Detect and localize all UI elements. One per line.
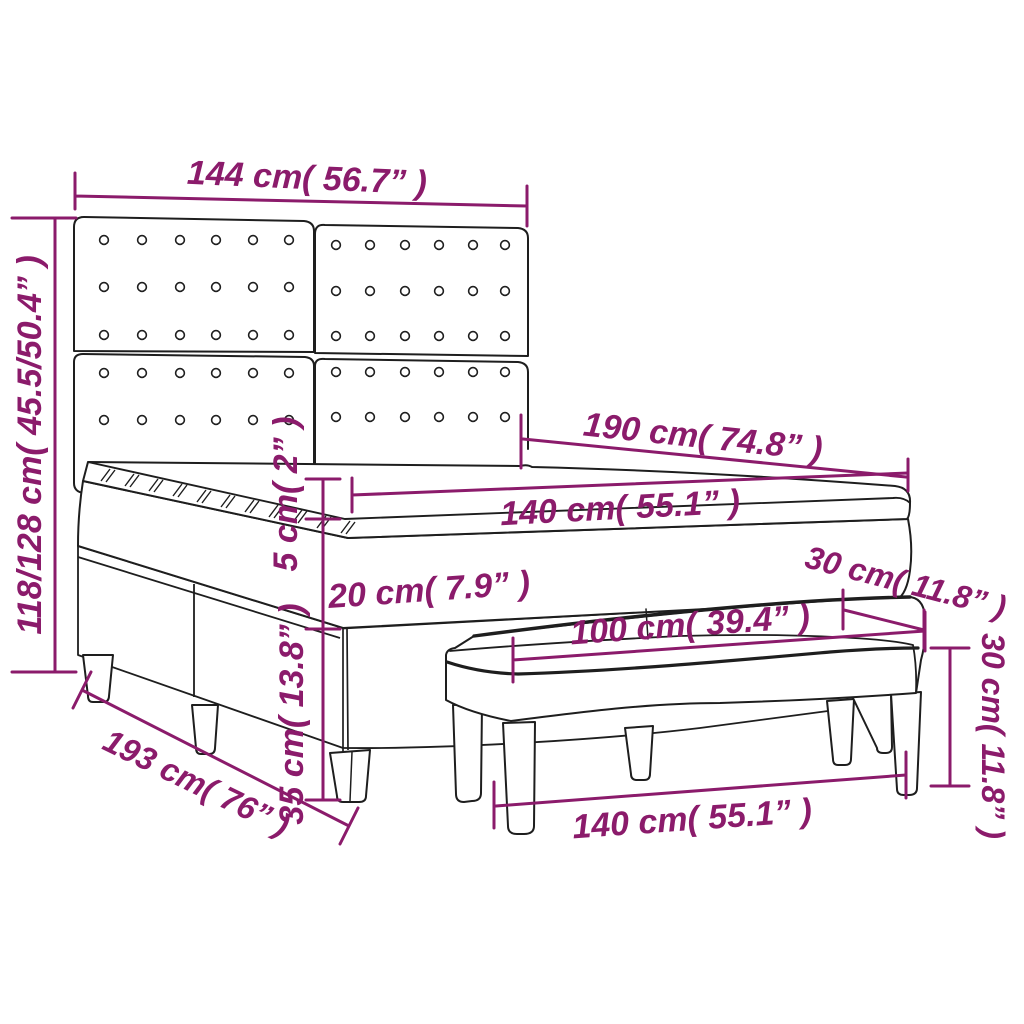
svg-text:30 cm( 11.8” ): 30 cm( 11.8” ) xyxy=(975,633,1011,839)
svg-text:35 cm( 13.8” ): 35 cm( 13.8” ) xyxy=(273,603,311,824)
svg-text:5 cm( 2” ): 5 cm( 2” ) xyxy=(267,417,305,572)
svg-text:118/128 cm( 45.5/50.4” ): 118/128 cm( 45.5/50.4” ) xyxy=(11,255,49,634)
